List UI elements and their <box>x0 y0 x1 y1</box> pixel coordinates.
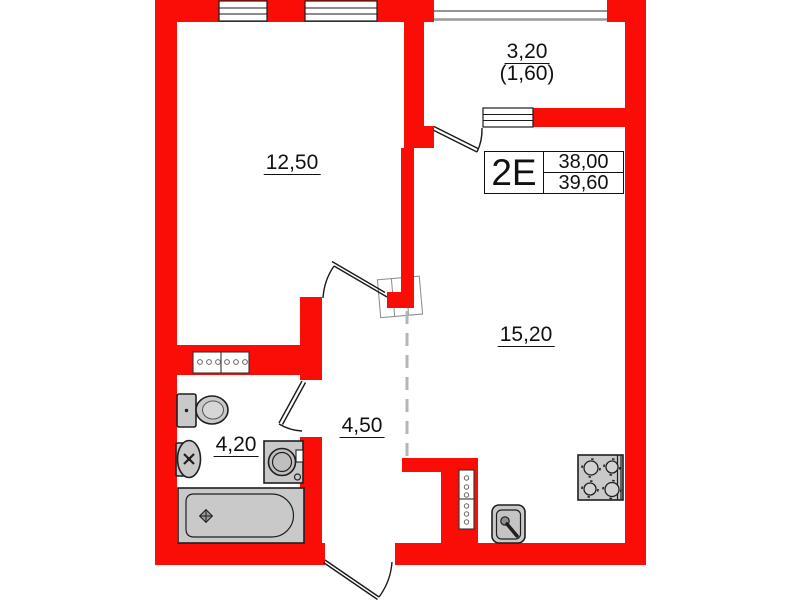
area-label-hallway: 4,50 <box>340 415 385 438</box>
floor-plan-drawing <box>0 0 800 600</box>
ventilation-duct-kitchen <box>459 470 474 529</box>
wall-right <box>625 0 646 565</box>
wall-bottom-left <box>155 543 325 565</box>
wall-middle-upper <box>404 0 424 132</box>
wash-basin <box>176 441 201 478</box>
window-right <box>305 1 377 21</box>
wall-hall-left-upper <box>300 297 322 380</box>
balcony-window <box>483 108 533 127</box>
balcony-door <box>433 127 482 153</box>
wall-middle-lower <box>401 148 414 300</box>
wall-balcony-divider <box>533 108 625 127</box>
wall-bottom-right <box>395 543 646 565</box>
unit-info-box: 2E 38,00 39,60 <box>484 151 624 194</box>
wall-door-jamb <box>387 292 414 308</box>
wall-balcony-jamb <box>404 126 434 148</box>
cooktop <box>578 455 623 500</box>
window-left <box>219 1 267 21</box>
area-label-balcony-reduced: (1,60) <box>500 63 555 85</box>
unit-type-label: 2E <box>485 152 544 193</box>
kitchen-sink <box>492 505 525 543</box>
ventilation-duct-bathroom <box>193 352 249 373</box>
unit-area-with-balcony: 39,60 <box>544 173 623 193</box>
area-label-bathroom: 4,20 <box>214 434 259 457</box>
area-label-living-room: 12,50 <box>264 152 321 175</box>
wall-top <box>155 0 434 22</box>
bathtub <box>178 488 304 543</box>
bathroom-door <box>279 381 306 431</box>
area-label-kitchen-living: 15,20 <box>498 324 555 347</box>
wall-left <box>155 0 177 565</box>
balcony-glazing <box>434 11 607 20</box>
unit-area-total: 38,00 <box>544 152 623 173</box>
toilet <box>177 394 228 427</box>
floor-plan-canvas: 12,50 3,20 (1,60) 15,20 4,50 4,20 2E 38,… <box>0 0 800 600</box>
washing-machine <box>264 441 303 483</box>
area-label-balcony: 3,20 <box>505 41 550 64</box>
entrance-door <box>324 560 393 600</box>
